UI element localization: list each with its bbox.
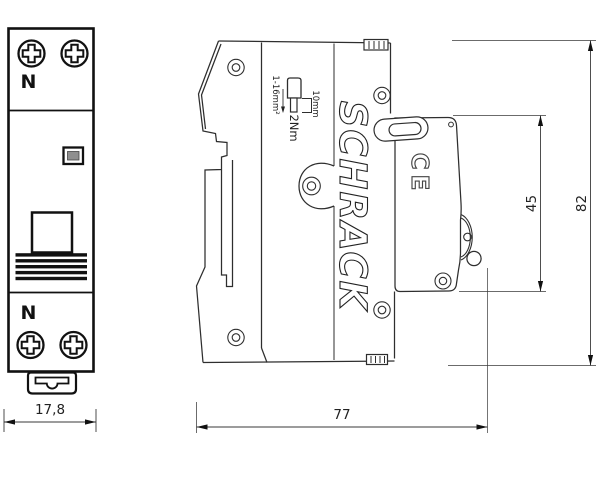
neutral-label-top: N bbox=[21, 71, 37, 93]
wire-pointer-arrow bbox=[281, 107, 285, 114]
torque-label: 2Nm bbox=[287, 114, 301, 141]
neutral-label-bottom: N bbox=[21, 302, 37, 324]
dimension-82: 82 bbox=[448, 41, 596, 366]
screw-terminal-icon bbox=[19, 41, 45, 67]
dimension-77-value: 77 bbox=[333, 407, 350, 423]
strip-length-label: 10mm bbox=[310, 90, 320, 117]
dimension-45-value: 45 bbox=[524, 195, 540, 212]
dimension-82-value: 82 bbox=[574, 195, 590, 212]
side-toggle-window bbox=[373, 116, 428, 142]
trip-lever bbox=[461, 215, 481, 266]
back-plate-thickness-line bbox=[202, 44, 222, 129]
screw-terminal-icon bbox=[18, 332, 44, 358]
dimension-17-8: 17,8 bbox=[4, 402, 96, 432]
technical-drawing-page: N N bbox=[0, 0, 600, 480]
body-back-edge-foot bbox=[262, 348, 268, 363]
bottom-clip-tab bbox=[367, 355, 388, 365]
front-view: N N bbox=[9, 29, 94, 394]
breaker-drawing-svg: N N bbox=[0, 0, 600, 480]
brand-logo-text: SCHRACK bbox=[331, 101, 374, 312]
front-plate-outline bbox=[395, 118, 461, 292]
ce-mark: CE bbox=[406, 153, 432, 196]
din-clip-tab bbox=[28, 373, 76, 394]
back-plate-outline bbox=[197, 41, 228, 363]
side-bottom-edge bbox=[203, 361, 395, 363]
dimension-45: 45 bbox=[453, 116, 546, 292]
screw-terminal-icon bbox=[61, 332, 87, 358]
indicator-window bbox=[64, 148, 84, 165]
screw-terminal-icon bbox=[62, 41, 88, 67]
side-view: SCHRACK 1-16mm² 10mm 2Nm CE bbox=[197, 40, 482, 365]
wire-gauge-icon bbox=[288, 78, 313, 113]
wire-range-label: 1-16mm² bbox=[270, 75, 280, 114]
top-clip-tab bbox=[364, 40, 388, 51]
wire-spec-group: 1-16mm² 10mm 2Nm bbox=[270, 75, 320, 141]
dimension-width-value: 17,8 bbox=[35, 402, 65, 418]
center-rivet-mount bbox=[299, 163, 334, 209]
din-spring-clip bbox=[222, 160, 233, 287]
toggle-switch bbox=[32, 213, 72, 253]
